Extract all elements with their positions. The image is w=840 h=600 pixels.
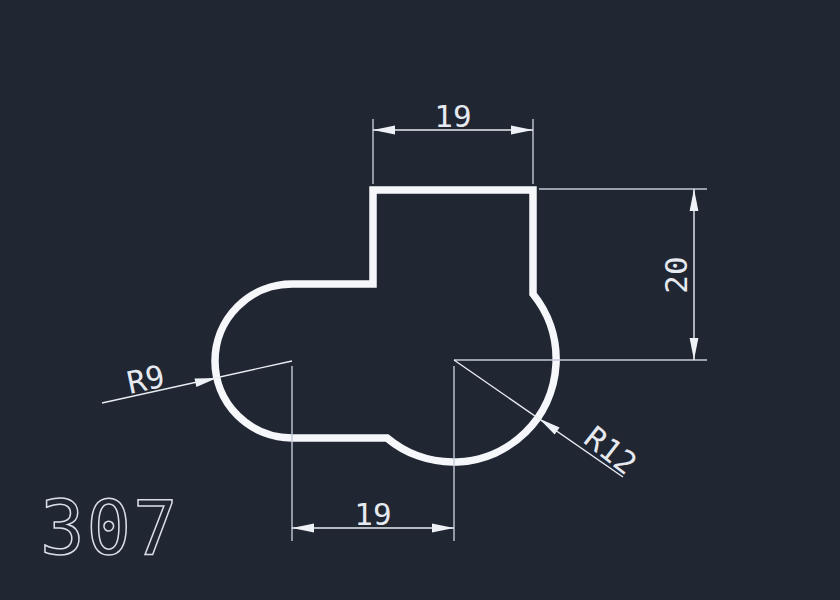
part-number-label: 307	[40, 485, 180, 571]
radius-dimension-r12: R12	[454, 360, 644, 482]
cad-drawing-canvas: 19 20 19 R9 R12 307	[0, 0, 840, 600]
dimension-bottom-width: 19	[292, 366, 454, 541]
radius-dimension-r9: R9	[102, 358, 292, 403]
radius-arrow	[195, 378, 218, 387]
dimension-top-width: 19	[373, 98, 533, 184]
radius-arrow	[539, 419, 560, 435]
radius-text-r12: R12	[578, 419, 644, 482]
dimension-text-top-width: 19	[434, 98, 471, 134]
dimension-text-bottom-width: 19	[354, 496, 391, 532]
dimension-arrow-top	[690, 189, 699, 211]
dimension-arrow-right	[432, 524, 454, 533]
dimension-arrow-right	[511, 126, 533, 135]
dimension-arrow-left	[373, 126, 395, 135]
dimension-text-right-height: 20	[658, 256, 694, 293]
radius-text-r9: R9	[124, 358, 168, 401]
dimension-arrow-left	[292, 524, 314, 533]
dimension-arrow-bottom	[690, 338, 699, 360]
part-outline	[215, 190, 556, 462]
dimension-right-height: 20	[454, 189, 707, 360]
